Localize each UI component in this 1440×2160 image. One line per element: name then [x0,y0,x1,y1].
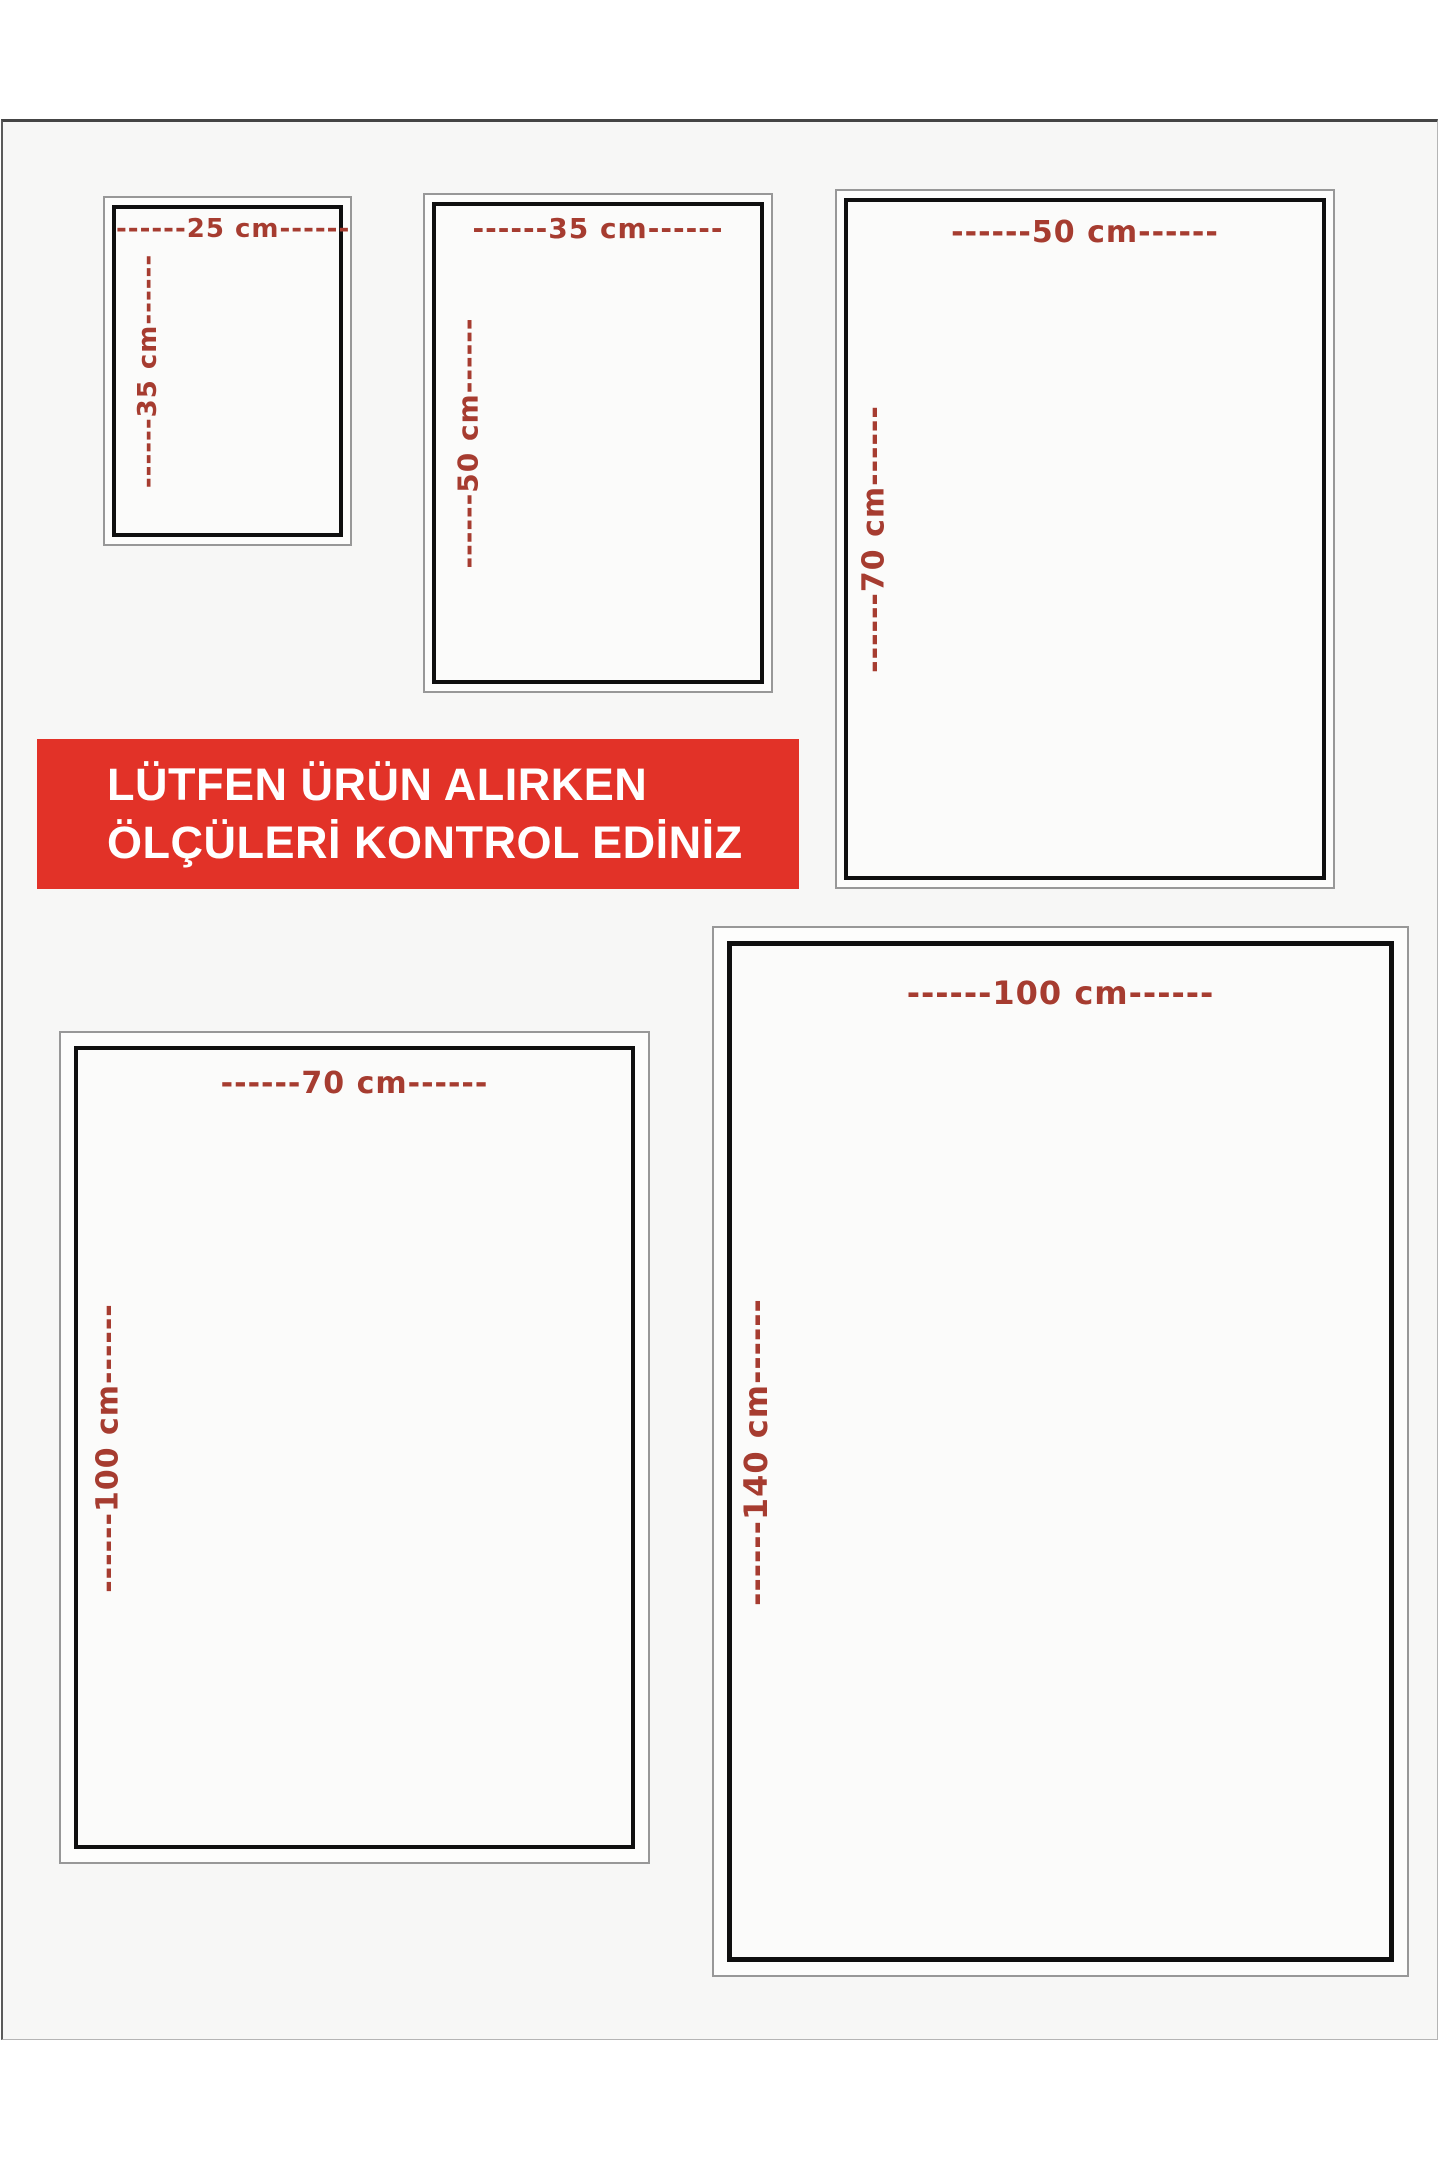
notice-banner-line-2: ÖLÇÜLERİ KONTROL EDİNİZ [107,819,799,867]
height-dimension-label: ------50 cm------ [452,318,485,569]
size-box-100x140: ------100 cm------ ------140 cm------ [712,926,1409,1977]
size-box-25x35-frame: ------25 cm------ ------35 cm------ [112,205,343,537]
width-dimension-label: ------70 cm------ [78,1066,631,1101]
size-box-100x140-frame: ------100 cm------ ------140 cm------ [727,941,1394,1962]
width-dimension-label: ------100 cm------ [732,974,1389,1012]
width-dimension-label: ------50 cm------ [848,215,1322,250]
size-box-70x100-frame: ------70 cm------ ------100 cm------ [74,1046,635,1849]
width-dimension-label: ------35 cm------ [436,212,760,245]
notice-banner: LÜTFEN ÜRÜN ALIRKEN ÖLÇÜLERİ KONTROL EDİ… [37,739,799,889]
size-box-35x50: ------35 cm------ ------50 cm------ [423,193,773,693]
size-box-25x35: ------25 cm------ ------35 cm------ [103,196,352,546]
height-dimension-label: ------70 cm------ [857,405,892,673]
notice-banner-line-1: LÜTFEN ÜRÜN ALIRKEN [107,761,799,809]
height-dimension-label: ------100 cm------ [91,1303,126,1593]
width-dimension-label: ------25 cm------ [116,214,339,244]
size-box-50x70: ------50 cm------ ------70 cm------ [835,189,1335,889]
size-guide-sheet: ------25 cm------ ------35 cm------ ----… [1,119,1438,2040]
height-dimension-label: ------35 cm------ [133,254,163,488]
size-box-50x70-frame: ------50 cm------ ------70 cm------ [844,198,1326,880]
size-box-70x100: ------70 cm------ ------100 cm------ [59,1031,650,1864]
height-dimension-label: ------140 cm------ [737,1298,775,1606]
size-box-35x50-frame: ------35 cm------ ------50 cm------ [432,202,764,684]
